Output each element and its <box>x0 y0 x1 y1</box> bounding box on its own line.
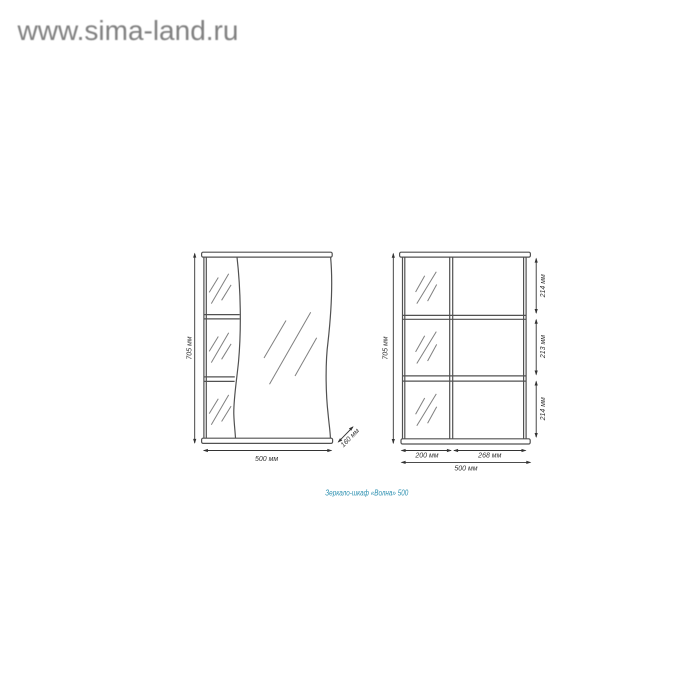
svg-text:200 мм: 200 мм <box>414 452 438 459</box>
svg-text:500 мм: 500 мм <box>255 456 278 463</box>
svg-text:214 мм: 214 мм <box>540 397 547 421</box>
svg-text:500 мм: 500 мм <box>454 465 477 472</box>
svg-text:705 мм: 705 мм <box>383 336 390 359</box>
svg-text:705 мм: 705 мм <box>187 336 194 359</box>
svg-text:Зеркало-шкаф «Волна» 500: Зеркало-шкаф «Волна» 500 <box>325 489 408 498</box>
svg-text:268 мм: 268 мм <box>477 452 501 459</box>
svg-text:213 мм: 213 мм <box>540 335 547 359</box>
svg-text:160 мм: 160 мм <box>340 427 361 449</box>
svg-text:214 мм: 214 мм <box>540 274 547 298</box>
